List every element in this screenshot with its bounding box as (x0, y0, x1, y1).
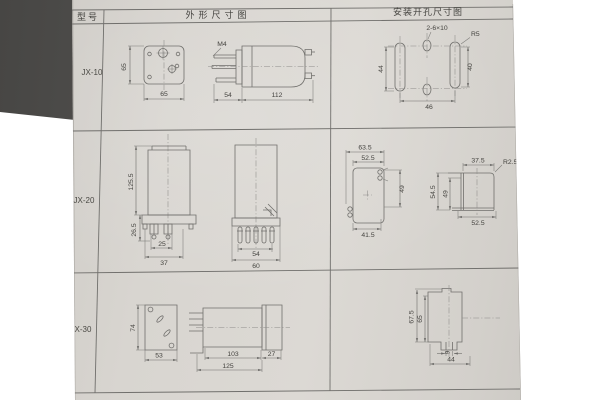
model-label-jx10: JX-10 (82, 68, 103, 77)
jx20-mounting-front-drawing: 63.5 52.5 49 41.5 (346, 145, 406, 240)
jx10-mounting-drawing: 2-6×10 R5 44 40 46 (378, 25, 480, 111)
jx20-dim-side-bottom-w: 52.5 (471, 220, 484, 227)
jx10-slot-note-label: 2-6×10 (426, 25, 448, 32)
header-model: 型号 (77, 12, 99, 22)
jx30-front-view-drawing: 74 53 (130, 305, 177, 362)
jx10-side-view-drawing: M4 54 112 (208, 41, 318, 103)
jx30-dim-total-length: 125 (222, 363, 234, 370)
jx10-dim-body-length: 112 (272, 92, 283, 99)
jx10-dim-left-slot: 44 (378, 65, 385, 73)
jx30-mounting-drawing: 67.5 65 9 44 (409, 285, 501, 366)
jx20-dim-cut-inner-w: 52.5 (361, 155, 374, 162)
jx20-dim-pin-span: 54 (252, 251, 260, 258)
jx30-side-view-drawing: 103 27 125 (189, 305, 290, 372)
jx20-dim-base-height: 26.5 (131, 223, 138, 236)
jx20-front-view-drawing: 125.5 26.5 25 37 (128, 134, 196, 267)
jx10-thread-label: M4 (217, 41, 227, 48)
jx10-dim-front-height: 65 (121, 63, 128, 71)
jx20-dim-side-outer-h: 54.5 (430, 185, 437, 198)
jx20-dim-cut-bottom-w: 41.5 (361, 232, 374, 239)
jx10-radius-label: R5 (471, 31, 480, 38)
jx10-dim-pin-length: 54 (224, 92, 232, 99)
jx10-dim-front-width: 65 (160, 91, 168, 98)
jx20-dim-cut-outer-w: 63.5 (358, 145, 371, 152)
jx30-dim-cut-outer-h: 67.5 (409, 310, 416, 323)
jx30-dim-front-height: 74 (130, 324, 137, 332)
jx20-mounting-side-drawing: 37.5 R2.5 54.5 49 52.5 (430, 158, 518, 228)
photo-of-datasheet: 型号 外形尺寸图 安装开孔尺寸图 JX-10 JX-20 JX-30 65 65 (0, 0, 600, 400)
jx30-dim-body-length: 103 (227, 351, 239, 358)
datasheet-table: 型号 外形尺寸图 安装开孔尺寸图 JX-10 JX-20 JX-30 65 65 (0, 0, 600, 400)
model-label-jx20: JX-20 (74, 196, 95, 205)
header-outline: 外形尺寸图 (185, 9, 250, 20)
jx20-dim-cut-height: 49 (399, 185, 406, 193)
table-grid (64, 7, 520, 393)
jx10-front-view-drawing: 65 65 (121, 40, 184, 101)
jx30-dim-cap-length: 27 (268, 351, 276, 358)
jx20-side-radius-label: R2.5 (503, 159, 518, 166)
jx20-side-view-drawing: 54 60 (232, 138, 280, 270)
jx30-dim-cut-inner-h: 65 (417, 315, 424, 323)
jx10-dim-slot-span: 46 (425, 104, 433, 111)
jx20-dim-side-top-w: 37.5 (471, 158, 484, 165)
model-label-jx30: JX-30 (71, 325, 92, 334)
jx10-dim-right-slot: 40 (467, 63, 474, 71)
jx30-dim-slot-width: 9 (445, 350, 452, 354)
jx30-dim-cut-bottom-w: 44 (447, 357, 455, 364)
jx30-dim-front-width: 53 (155, 353, 163, 360)
jx20-dim-outer-width: 37 (160, 260, 168, 267)
header-mounting: 安装开孔尺寸图 (393, 6, 463, 17)
jx20-dim-height: 125.5 (128, 173, 135, 190)
jx20-dim-inner-width: 25 (158, 241, 166, 248)
jx20-dim-side-inner-h: 49 (443, 190, 450, 198)
paper-right-edge (513, 4, 521, 400)
jx20-dim-width: 60 (252, 263, 260, 270)
